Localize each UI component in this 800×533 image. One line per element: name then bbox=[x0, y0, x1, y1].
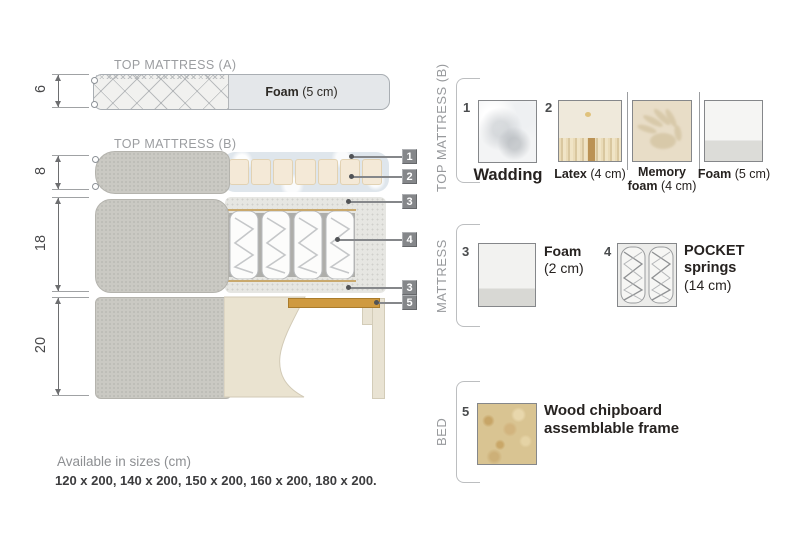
legend-divider bbox=[627, 92, 628, 170]
pin-icon bbox=[92, 156, 99, 163]
quilted-texture bbox=[94, 75, 229, 109]
memory-foam-label-line2: foam (4 cm) bbox=[616, 179, 708, 193]
legend-num-5: 5 bbox=[462, 404, 469, 419]
foam-block bbox=[229, 159, 249, 185]
dim18-arrow-up-icon bbox=[55, 198, 61, 204]
layer-tag-1: 1 bbox=[402, 149, 417, 164]
dim18-tick-bottom bbox=[52, 291, 89, 292]
quilt-sawtooth-edge bbox=[96, 75, 226, 79]
wood-label: Wood chipboard bbox=[544, 403, 662, 420]
dim6-arrow-up-icon bbox=[55, 75, 61, 81]
dim6-value: 6 bbox=[33, 74, 49, 104]
dim20-arrow-down-icon bbox=[55, 389, 61, 395]
latex-top-texture bbox=[559, 101, 621, 138]
leader-line-4 bbox=[337, 239, 402, 241]
wadding-label: Wadding bbox=[462, 166, 554, 185]
sizes-title: Available in sizes (cm) bbox=[57, 454, 191, 469]
dim20-line bbox=[58, 298, 59, 395]
leader-line-3 bbox=[348, 201, 402, 203]
section-label-mattress: MATTRESS bbox=[434, 226, 449, 326]
foam-2cm-swatch bbox=[478, 243, 536, 307]
foam-block bbox=[362, 159, 382, 185]
memory-foam-swatch bbox=[632, 100, 692, 162]
section-label-bed: BED bbox=[434, 383, 449, 481]
dim20-tick-bottom bbox=[52, 395, 89, 396]
latex-fringe-texture bbox=[559, 138, 621, 161]
foam-5cm-swatch bbox=[704, 100, 763, 162]
section-bracket bbox=[456, 224, 480, 327]
layer-tag-3: 3 bbox=[402, 194, 417, 209]
foam-block bbox=[340, 159, 360, 185]
dim18-line bbox=[58, 198, 59, 291]
foam-block bbox=[251, 159, 271, 185]
legend-num-1: 1 bbox=[463, 100, 470, 115]
wood-label-line2: assemblable frame bbox=[544, 421, 679, 438]
top-b-foam-blocks bbox=[229, 159, 382, 185]
pocket-springs-label-line3: (14 cm) bbox=[684, 277, 731, 294]
pin-icon bbox=[91, 77, 98, 84]
legend-num-4: 4 bbox=[604, 244, 611, 259]
legend-num-3: 3 bbox=[462, 244, 469, 259]
top-a-foam-label: Foam (5 cm) bbox=[228, 75, 389, 109]
spring-frame-line-bottom bbox=[228, 280, 356, 282]
section-label-top-mattress-b: TOP MATTRESS (B) bbox=[434, 66, 449, 192]
pocket-springs-row-illustration bbox=[229, 211, 355, 279]
hand-imprint-icon bbox=[633, 101, 691, 161]
top-mattress-a-title: TOP MATTRESS (A) bbox=[114, 58, 236, 72]
top-mattress-b-title: TOP MATTRESS (B) bbox=[114, 137, 236, 151]
bed-wood-slat bbox=[288, 298, 380, 308]
pocket-springs-swatch bbox=[617, 243, 677, 307]
sizes-list: 120 x 200, 140 x 200, 150 x 200, 160 x 2… bbox=[55, 473, 377, 488]
mattress-fabric-cover bbox=[95, 199, 229, 293]
foam-2cm-label-line2: (2 cm) bbox=[544, 260, 584, 277]
layer-tag-2: 2 bbox=[402, 169, 417, 184]
foam-5cm-label: Foam (5 cm) bbox=[688, 167, 780, 181]
dim20-arrow-up-icon bbox=[55, 298, 61, 304]
layer-tag-3b: 3 bbox=[402, 280, 417, 295]
mattress-construction-infographic: TOP MATTRESS (A) TOP MATTRESS (B) 6 8 18… bbox=[0, 0, 800, 533]
foam-block bbox=[295, 159, 315, 185]
pin-icon bbox=[91, 101, 98, 108]
foam-2cm-label: Foam bbox=[544, 243, 581, 260]
dim8-arrow-up-icon bbox=[55, 156, 61, 162]
dim8-arrow-down-icon bbox=[55, 183, 61, 189]
pocket-springs-icon bbox=[618, 244, 676, 306]
top-b-fabric-cover bbox=[95, 151, 230, 194]
bed-fabric-cover bbox=[95, 297, 232, 399]
dim8-value: 8 bbox=[33, 156, 49, 186]
dim18-arrow-down-icon bbox=[55, 285, 61, 291]
pin-icon bbox=[92, 183, 99, 190]
leader-line-5 bbox=[376, 302, 402, 304]
pocket-springs-label: POCKET bbox=[684, 243, 744, 260]
layer-tag-4: 4 bbox=[402, 232, 417, 247]
dim8-tick-bottom bbox=[52, 189, 89, 190]
top-mattress-a-illustration: Foam (5 cm) bbox=[93, 74, 390, 110]
bed-fabric-drape bbox=[224, 296, 308, 398]
pocket-springs-label-line2: springs bbox=[684, 260, 736, 277]
wood-chipboard-swatch bbox=[477, 403, 537, 465]
legend-divider bbox=[699, 92, 700, 170]
wadding-swatch bbox=[478, 100, 537, 163]
dim6-tick-bottom bbox=[52, 107, 89, 108]
dim6-arrow-down-icon bbox=[55, 101, 61, 107]
bed-frame-post bbox=[372, 298, 385, 399]
leader-line-1 bbox=[351, 156, 402, 158]
dim18-value: 18 bbox=[33, 228, 49, 258]
latex-swatch bbox=[558, 100, 622, 162]
leader-line-3b bbox=[348, 287, 402, 289]
latex-dot bbox=[585, 112, 591, 117]
layer-tag-5: 5 bbox=[402, 295, 417, 310]
latex-notch bbox=[588, 138, 595, 161]
foam-block bbox=[318, 159, 338, 185]
foam-block bbox=[273, 159, 293, 185]
leader-line-2 bbox=[351, 176, 402, 178]
legend-num-2: 2 bbox=[545, 100, 552, 115]
dim20-value: 20 bbox=[33, 330, 49, 360]
